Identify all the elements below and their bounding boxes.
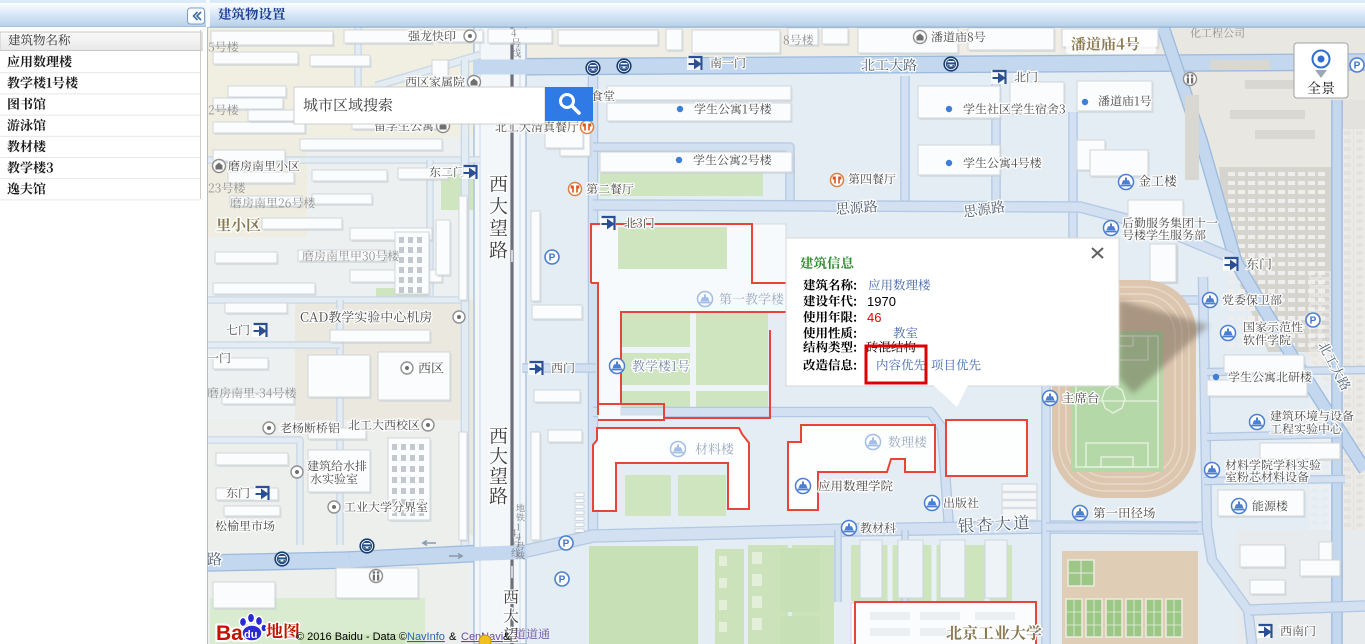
svg-text:P: P (1354, 61, 1361, 72)
svg-text:NavInfo: NavInfo (407, 631, 445, 643)
svg-text:46: 46 (867, 310, 881, 325)
svg-text:P: P (1310, 316, 1317, 327)
svg-text:P: P (549, 253, 556, 264)
svg-text:P: P (563, 539, 570, 550)
svg-text:© 2016 Baidu - Data ©: © 2016 Baidu - Data © (296, 631, 407, 643)
svg-text:P: P (559, 575, 566, 586)
svg-text:du: du (244, 629, 257, 641)
svg-text:1970: 1970 (867, 294, 896, 309)
svg-text:&: & (449, 631, 457, 643)
svg-text:&: & (503, 631, 511, 643)
